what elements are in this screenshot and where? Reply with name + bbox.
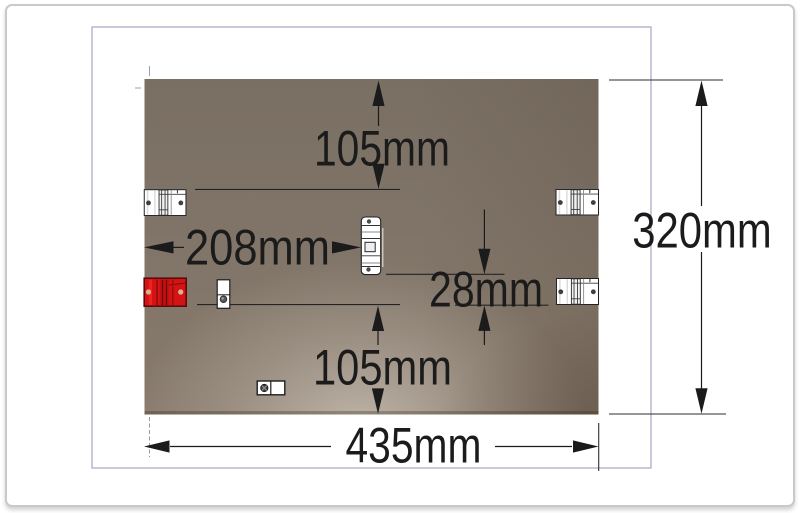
svg-text:105mm: 105mm bbox=[314, 120, 450, 177]
svg-text:208mm: 208mm bbox=[185, 218, 330, 275]
svg-text:435mm: 435mm bbox=[346, 417, 482, 474]
svg-text:320mm: 320mm bbox=[632, 202, 772, 259]
svg-text:105mm: 105mm bbox=[313, 339, 452, 396]
svg-text:28mm: 28mm bbox=[429, 261, 543, 318]
